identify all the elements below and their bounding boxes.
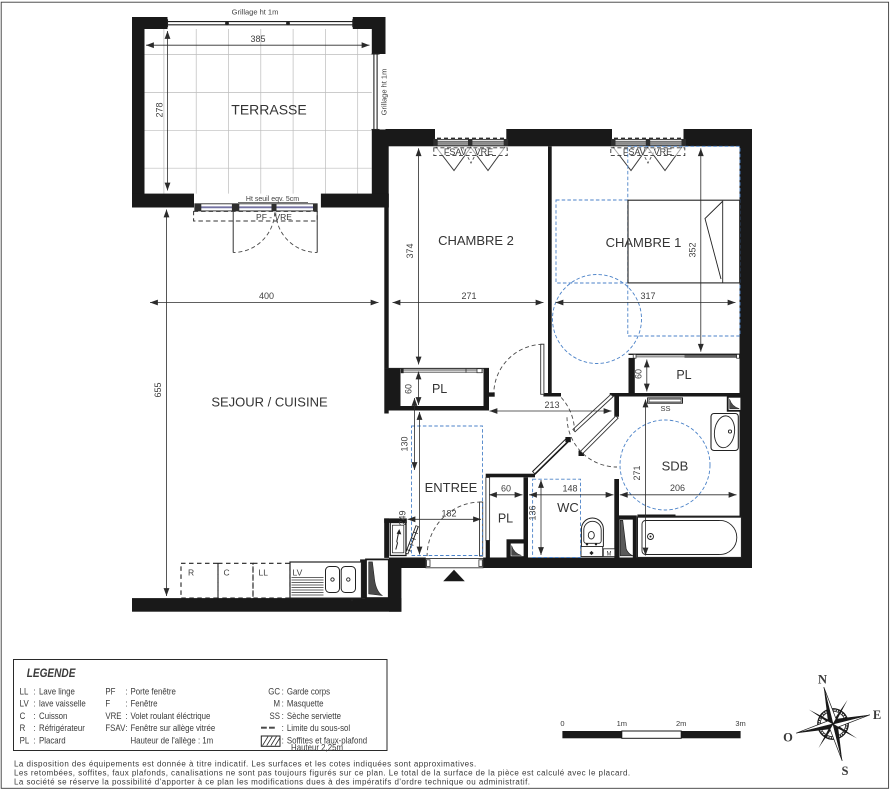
svg-text:Grillage ht 1m: Grillage ht 1m (232, 8, 279, 17)
svg-text::: : (282, 735, 284, 746)
svg-text:Placard: Placard (39, 735, 66, 746)
svg-text:LV: LV (293, 568, 303, 578)
svg-text:Les retombées, soffites, faux: Les retombées, soffites, faux plafonds, … (14, 768, 631, 777)
svg-text:Volet roulant éléctrique: Volet roulant éléctrique (130, 710, 210, 721)
svg-text:Porte fenêtre: Porte fenêtre (130, 686, 176, 697)
svg-text::: : (125, 722, 127, 733)
svg-text:0: 0 (560, 719, 564, 728)
svg-text:ENTREE: ENTREE (425, 480, 478, 495)
svg-text:SDB: SDB (662, 459, 689, 474)
svg-text:Masquette: Masquette (287, 698, 324, 709)
svg-text::: : (125, 698, 127, 709)
svg-text:Réfrigérateur: Réfrigérateur (39, 722, 85, 733)
svg-text::: : (33, 686, 35, 697)
svg-text:E: E (873, 708, 881, 722)
svg-text:R: R (20, 722, 26, 733)
svg-text:Fenêtre sur allège vitrée: Fenêtre sur allège vitrée (130, 722, 215, 733)
svg-text::: : (125, 710, 127, 721)
svg-text::: : (282, 686, 284, 697)
svg-text:655: 655 (153, 382, 163, 397)
svg-text:M: M (607, 551, 612, 557)
svg-text:PL: PL (20, 735, 30, 746)
svg-text:N: N (818, 673, 827, 687)
svg-text:271: 271 (461, 291, 476, 301)
svg-text:Hauteur de l'allège : 1m: Hauteur de l'allège : 1m (130, 735, 213, 746)
svg-text:Ht seuil eqv. 5cm: Ht seuil eqv. 5cm (246, 196, 299, 203)
svg-text:FSAV: FSAV (105, 722, 125, 733)
svg-text::: : (125, 686, 127, 697)
svg-text:PF: PF (105, 686, 115, 697)
svg-text:148: 148 (562, 484, 577, 494)
svg-text:Fenêtre: Fenêtre (130, 698, 157, 709)
svg-text:TERRASSE: TERRASSE (231, 102, 306, 118)
svg-text:SS: SS (270, 710, 281, 721)
svg-text:GC: GC (268, 686, 280, 697)
svg-text:lave vaisselle: lave vaisselle (39, 698, 86, 709)
svg-text:136: 136 (528, 505, 538, 520)
svg-text:271: 271 (632, 465, 642, 480)
svg-text:LL: LL (259, 568, 269, 578)
svg-text:385: 385 (250, 34, 265, 44)
svg-text:1m: 1m (617, 719, 627, 728)
svg-text::: : (33, 698, 35, 709)
svg-text:SS: SS (660, 404, 670, 413)
svg-text::: : (33, 710, 35, 721)
svg-text::: : (282, 710, 284, 721)
svg-text:60: 60 (404, 384, 414, 394)
svg-text:SEJOUR / CUISINE: SEJOUR / CUISINE (211, 395, 328, 410)
svg-text::: : (282, 722, 284, 733)
svg-text:213: 213 (544, 400, 559, 410)
svg-text:M: M (273, 698, 280, 709)
svg-text:352: 352 (687, 242, 697, 257)
svg-text:Garde corps: Garde corps (287, 686, 331, 697)
svg-text:S: S (842, 764, 849, 778)
svg-text:249: 249 (398, 510, 408, 525)
svg-text:PF - VRE: PF - VRE (256, 212, 292, 222)
svg-text:130: 130 (400, 436, 410, 451)
svg-text:Limite du sous-sol: Limite du sous-sol (287, 722, 350, 733)
svg-text:C: C (20, 710, 26, 721)
svg-text:Lave linge: Lave linge (39, 686, 75, 697)
svg-text:LV: LV (20, 698, 29, 709)
svg-text::: : (33, 735, 35, 746)
svg-text:FSAV - VRE: FSAV - VRE (444, 147, 493, 157)
svg-text:LEGENDE: LEGENDE (27, 667, 76, 680)
svg-text::: : (33, 722, 35, 733)
svg-text:Hauteur 2,25m: Hauteur 2,25m (291, 742, 343, 753)
svg-text:FSAV - VRE: FSAV - VRE (623, 147, 672, 157)
svg-text:R: R (188, 568, 194, 578)
svg-text:La disposition des équipements: La disposition des équipements est donné… (14, 759, 477, 768)
svg-text:C: C (224, 568, 230, 578)
svg-text:CHAMBRE 2: CHAMBRE 2 (438, 233, 514, 248)
svg-text:278: 278 (155, 102, 165, 117)
svg-text:O: O (783, 731, 793, 745)
svg-text:PL: PL (498, 512, 513, 526)
svg-text:Sèche serviette: Sèche serviette (287, 710, 341, 721)
svg-text:2m: 2m (676, 719, 686, 728)
svg-text:60: 60 (501, 484, 511, 494)
svg-text:400: 400 (259, 291, 274, 301)
svg-text:PL: PL (432, 382, 447, 396)
svg-text:182: 182 (441, 509, 456, 519)
svg-text:Grillage ht 1m: Grillage ht 1m (380, 69, 389, 116)
svg-text:3m: 3m (735, 719, 745, 728)
svg-text:F: F (105, 698, 110, 709)
svg-text:WC: WC (557, 500, 579, 515)
svg-text:CHAMBRE 1: CHAMBRE 1 (606, 235, 682, 250)
svg-text:60: 60 (633, 369, 643, 379)
svg-text:Cuisson: Cuisson (39, 710, 68, 721)
svg-text:VRE: VRE (105, 710, 121, 721)
svg-text:LL: LL (20, 686, 29, 697)
svg-text::: : (282, 698, 284, 709)
svg-text:206: 206 (670, 483, 685, 493)
svg-text:La société se réserve la possi: La société se réserve la possibilité d'a… (14, 778, 530, 787)
svg-text:374: 374 (405, 243, 415, 258)
svg-text:PL: PL (676, 368, 691, 382)
svg-text:317: 317 (640, 291, 655, 301)
